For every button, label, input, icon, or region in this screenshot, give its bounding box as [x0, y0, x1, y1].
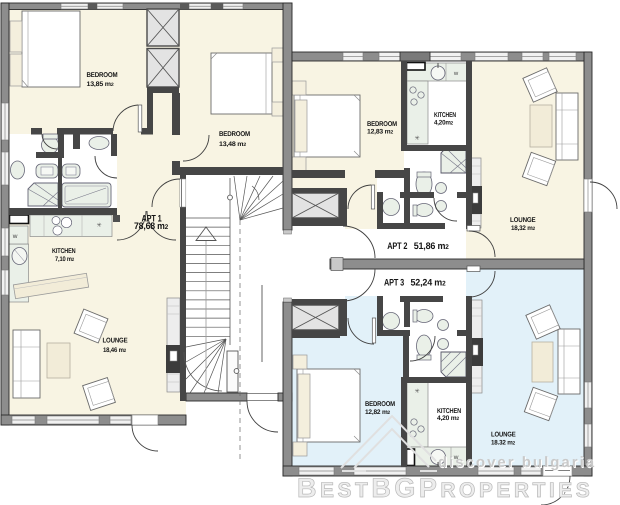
- svg-text:KITCHEN: KITCHEN: [437, 408, 461, 415]
- svg-text:52,24 m2: 52,24 m2: [411, 277, 446, 288]
- svg-text:18.32 m2: 18.32 m2: [491, 440, 516, 447]
- svg-text:APT 2: APT 2: [387, 241, 407, 252]
- svg-text:BEDROOM: BEDROOM: [219, 131, 250, 138]
- svg-text:13,48 m2: 13,48 m2: [219, 141, 247, 148]
- svg-text:✳: ✳: [415, 135, 420, 142]
- svg-text:✳: ✳: [97, 222, 102, 229]
- svg-text:w: w: [453, 71, 459, 77]
- svg-text:LOUNGE: LOUNGE: [103, 338, 129, 345]
- svg-text:APT 3: APT 3: [384, 277, 404, 288]
- svg-text:4,20m2: 4,20m2: [434, 120, 454, 127]
- svg-text:78,68 m2: 78,68 m2: [134, 221, 168, 232]
- svg-text:BEDROOM: BEDROOM: [367, 121, 397, 128]
- svg-text:51,86 m2: 51,86 m2: [414, 241, 449, 252]
- svg-text:BEDROOM: BEDROOM: [87, 72, 118, 79]
- svg-text:KITCHEN: KITCHEN: [52, 248, 76, 255]
- svg-text:LOUNGE: LOUNGE: [510, 217, 536, 224]
- svg-text:7,10 m2: 7,10 m2: [55, 256, 74, 263]
- svg-text:w: w: [12, 233, 18, 240]
- svg-text:18,32 m2: 18,32 m2: [511, 225, 536, 232]
- svg-text:12,82 m2: 12,82 m2: [365, 409, 391, 416]
- svg-text:12,83 m2: 12,83 m2: [367, 129, 394, 136]
- svg-text:LOUNGE: LOUNGE: [491, 432, 516, 439]
- svg-text:discover bulgaria: discover bulgaria: [438, 454, 596, 471]
- svg-text:BEDROOM: BEDROOM: [365, 401, 395, 408]
- svg-text:4,20 m2: 4,20 m2: [437, 415, 460, 422]
- svg-text:18,46 m2: 18,46 m2: [103, 347, 126, 354]
- svg-text:✳: ✳: [415, 388, 420, 395]
- svg-text:13,85 m2: 13,85 m2: [87, 81, 115, 88]
- svg-text:KITCHEN: KITCHEN: [434, 112, 456, 119]
